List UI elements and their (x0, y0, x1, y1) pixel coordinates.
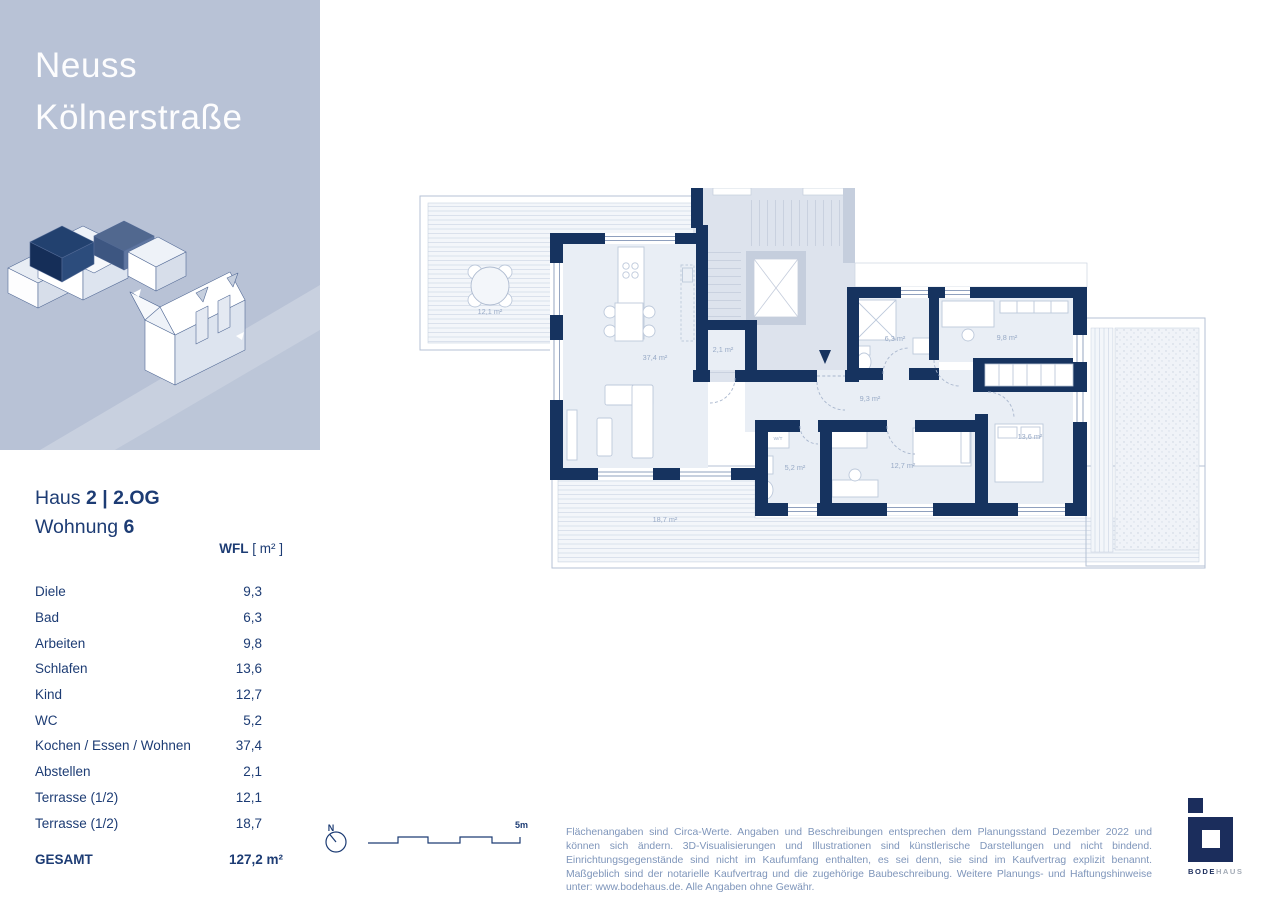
haus-line: Haus 2 | 2.OG (35, 484, 160, 513)
logo-square-hole (1202, 830, 1220, 848)
logo-text-haus: HAUS (1216, 867, 1244, 876)
project-title-line2: Kölnerstraße (35, 92, 243, 144)
desk (942, 301, 994, 327)
room-area: 2,1 (243, 764, 262, 779)
room-name: Kind (35, 687, 62, 702)
area-total-row: GESAMT 127,2 m² (35, 847, 283, 873)
area-table: WFL [ m² ] Diele9,3 Bad6,3 Arbeiten9,8 S… (35, 541, 283, 873)
room-label-terrasse-links: 12,1 m² (478, 307, 503, 316)
project-panel: Neuss Kölnerstraße (0, 0, 320, 450)
built-in-closet (985, 364, 1073, 386)
area-row: Diele9,3 (35, 579, 262, 605)
room-area: 13,6 (236, 661, 262, 676)
logo-big-square (1188, 817, 1233, 862)
terrace-right (1086, 318, 1205, 566)
room-label-terrasse-unten: 18,7 m² (653, 515, 678, 524)
area-row: Arbeiten9,8 (35, 630, 262, 656)
logo-wordmark: BODEHAUS (1188, 867, 1243, 876)
area-row: Kochen / Essen / Wohnen37,4 (35, 733, 262, 759)
room-name: Kochen / Essen / Wohnen (35, 738, 191, 753)
disclaimer-text: Flächenangaben sind Circa-Werte. Angaben… (566, 826, 1152, 895)
area-row: Terrasse (1/2)12,1 (35, 785, 262, 811)
room-name: Diele (35, 584, 66, 599)
room-label-arbeiten: 9,8 m² (997, 333, 1018, 342)
haus-prefix: Haus (35, 487, 81, 509)
room-name: Schlafen (35, 661, 88, 676)
room-area: 9,3 (243, 584, 262, 599)
scale-label: 5m (515, 820, 528, 830)
project-title-line1: Neuss (35, 40, 243, 92)
room-name: WC (35, 713, 58, 728)
room-area: 37,4 (236, 738, 262, 753)
haus-value: 2 | 2.OG (86, 487, 160, 509)
adjacent-structure (855, 263, 1087, 287)
room-label-abstellen: 2,1 m² (713, 345, 734, 354)
area-row: Schlafen13,6 (35, 656, 262, 682)
area-row: WC5,2 (35, 707, 262, 733)
logo-text-bode: BODE (1188, 867, 1216, 876)
logo-small-square (1188, 798, 1203, 813)
building-illustration (0, 190, 320, 450)
tv-board (567, 410, 577, 460)
area-row: Terrasse (1/2)18,7 (35, 810, 262, 836)
kind-desk (832, 480, 878, 497)
north-label: N (328, 823, 335, 833)
room-label-kind: 12,7 m² (891, 461, 916, 470)
wfl-label: WFL (219, 541, 248, 556)
room-name: Bad (35, 610, 59, 625)
area-row: Kind12,7 (35, 682, 262, 708)
room-label-bad: 6,3 m² (885, 334, 906, 343)
room-label-wc: 5,2 m² (785, 463, 806, 472)
area-row: Abstellen2,1 (35, 759, 262, 785)
room-area: 9,8 (243, 636, 262, 651)
compass-and-scale: N 5m (320, 812, 535, 862)
elevator (746, 251, 806, 325)
dining-table (615, 303, 643, 341)
wohnung-line: Wohnung 6 (35, 513, 160, 542)
scale-bar: 5m (368, 820, 528, 843)
room-area: 12,1 (236, 790, 262, 805)
room-area: 18,7 (236, 816, 262, 831)
room-name: Terrasse (1/2) (35, 790, 118, 805)
room-area: 5,2 (243, 713, 262, 728)
unit-heading: Haus 2 | 2.OG Wohnung 6 (35, 484, 160, 542)
coffee-table (597, 418, 612, 456)
room-area: 12,7 (236, 687, 262, 702)
wohnung-prefix: Wohnung (35, 516, 118, 538)
project-title: Neuss Kölnerstraße (35, 40, 243, 144)
room-label-diele: 9,3 m² (860, 394, 881, 403)
left-building (8, 221, 186, 308)
floor-plan: 12,1 m² 37,4 m² 2,1 m² 6,3 m² 9,8 m² 9,3… (415, 188, 1210, 573)
room-name: Abstellen (35, 764, 91, 779)
room-label-kochen: 37,4 m² (643, 353, 668, 362)
area-table-header: WFL [ m² ] (35, 541, 283, 558)
room-name: Terrasse (1/2) (35, 816, 118, 831)
area-row: Bad6,3 (35, 605, 262, 631)
wohnung-value: 6 (124, 516, 135, 538)
room-area: 6,3 (243, 610, 262, 625)
total-label: GESAMT (35, 852, 93, 867)
area-rows: Diele9,3 Bad6,3 Arbeiten9,8 Schlafen13,6… (35, 579, 262, 836)
company-logo: BODEHAUS (1188, 795, 1252, 880)
washer-dryer-label: W/T (774, 436, 783, 442)
north-indicator: N (326, 823, 346, 852)
room-label-schlafen: 13,6 m² (1018, 432, 1043, 441)
wfl-unit: [ m² ] (252, 541, 283, 556)
terrace-table (471, 267, 509, 305)
total-value: 127,2 m² (229, 852, 283, 867)
room-name: Arbeiten (35, 636, 85, 651)
